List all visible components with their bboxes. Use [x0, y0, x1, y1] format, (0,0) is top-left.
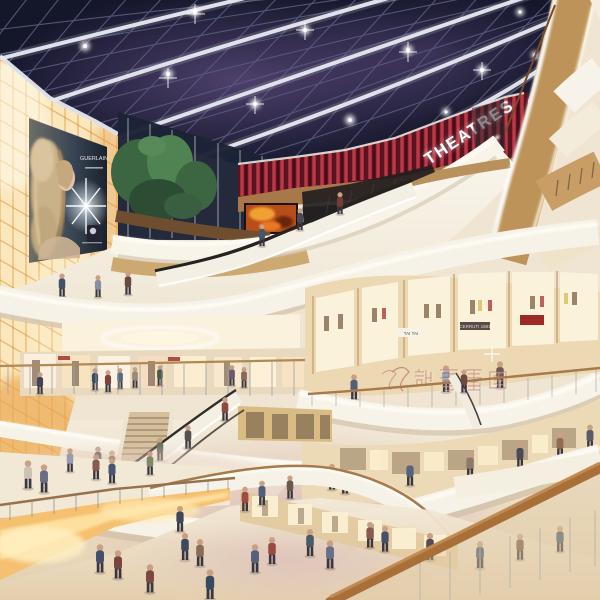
svg-text:GUERLAIN: GUERLAIN — [80, 156, 108, 162]
svg-text:TAI TAI: TAI TAI — [404, 331, 419, 336]
svg-text:CERRUTI 1881: CERRUTI 1881 — [459, 324, 491, 329]
